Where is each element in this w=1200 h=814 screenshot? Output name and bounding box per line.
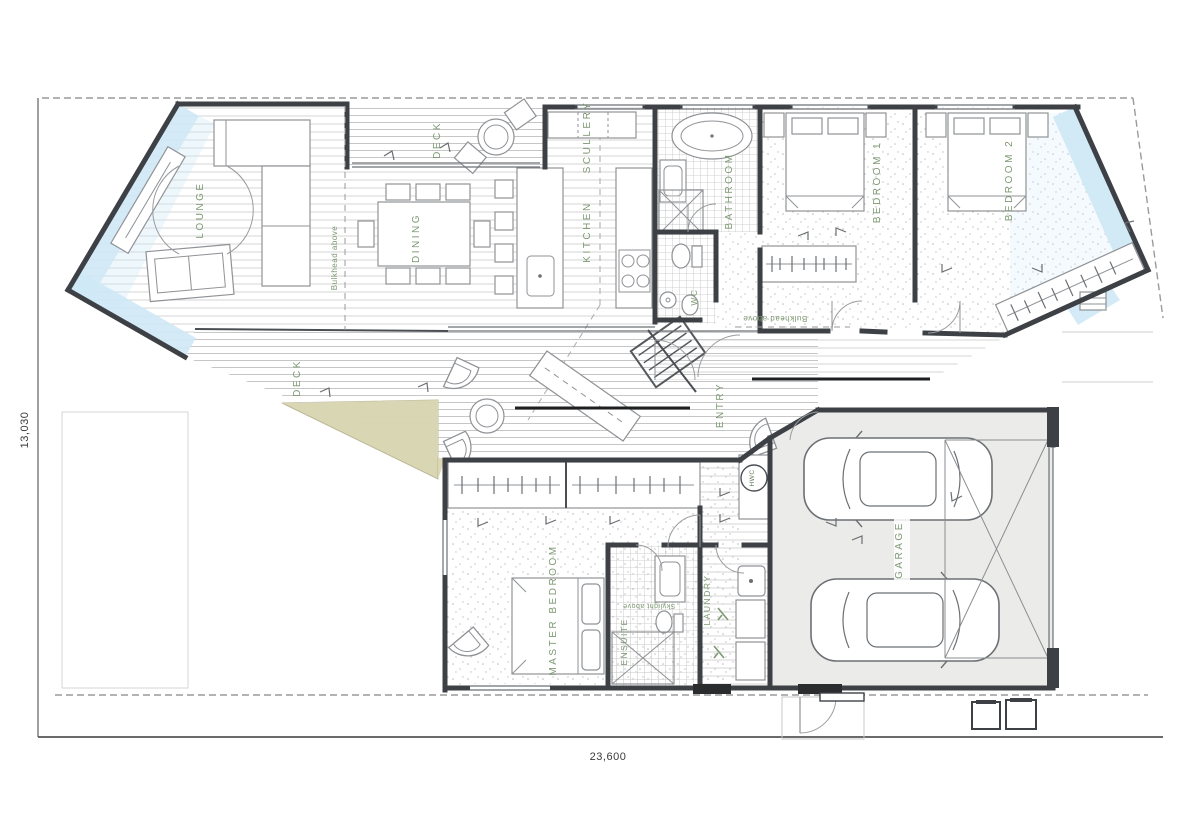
dining-chair: [416, 184, 440, 200]
dining-chair: [446, 184, 470, 200]
bar-stool: [495, 212, 513, 230]
toilet-cistern: [692, 246, 702, 267]
garage-pilaster: [1047, 407, 1059, 447]
bar-stool: [495, 276, 513, 294]
bedroom1-wardrobe: [762, 246, 856, 282]
dining-chair: [386, 268, 410, 284]
bar-stool: [495, 244, 513, 262]
room-label-bedroom2: BEDROOM 2: [1004, 139, 1015, 222]
washing-machine: [736, 600, 765, 638]
room-label-laundry: LAUNDRY: [702, 575, 712, 626]
room-label-hwc: HWC: [749, 469, 756, 486]
toilet: [672, 244, 690, 268]
room-label-deck-middle: DECK: [292, 359, 303, 397]
ensuite-toilet: [656, 611, 672, 633]
sofa-section-top: [214, 120, 310, 166]
room-label-lounge: LOUNGE: [195, 181, 206, 238]
bedside-table: [764, 113, 784, 137]
kitchen-island: [517, 168, 563, 308]
room-label-entry: ENTRY: [715, 382, 726, 428]
pillow: [582, 630, 600, 670]
dining-table: [378, 202, 470, 266]
bedside-table: [866, 113, 886, 137]
room-label-wc: WC: [689, 288, 699, 305]
room-label-scullery: SCULLERY: [582, 101, 593, 174]
room-label-master-bedroom: MASTER BEDROOM: [548, 544, 559, 675]
room-label-bathroom: BATHROOM: [724, 152, 735, 229]
dining-chair: [416, 268, 440, 284]
wc-basin: [660, 292, 676, 308]
master-wardrobe: [448, 462, 700, 508]
deck-table: [478, 119, 514, 155]
boundary-right-dashed: [1133, 98, 1163, 318]
deck-table: [470, 399, 504, 433]
car-bottom: [811, 572, 999, 668]
room-label-deck-top: DECK: [432, 121, 443, 159]
hall-floor: [655, 331, 1008, 380]
room-label-ensuite: ENSUITE: [619, 618, 629, 665]
pillow: [582, 584, 600, 624]
dining-chair: [446, 268, 470, 284]
room-label-kitchen: KITCHEN: [582, 201, 593, 262]
room-label-garage: GARAGE: [894, 521, 905, 579]
bar-stool: [495, 180, 513, 198]
dryer: [736, 642, 765, 680]
room-label-dining: DINING: [411, 213, 422, 263]
garage-rear-door: [782, 697, 864, 739]
bedside-table: [926, 113, 946, 137]
bin: [1006, 700, 1036, 729]
floor-plan-page: LOUNGE DECK DINING SCULLERY KITCHEN BATH…: [0, 0, 1200, 814]
dining-chair: [474, 221, 490, 247]
dimension-site-depth: 13,030: [19, 412, 31, 449]
bedside-table: [1028, 113, 1048, 137]
dimension-site-width: 23,600: [590, 751, 627, 763]
dining-chair: [386, 184, 410, 200]
sofa-two-seater: [146, 244, 234, 301]
annotation-bulkhead-living: Bulkhead above: [330, 226, 339, 290]
annotation-bulkhead-hall: Bulkhead above: [743, 314, 807, 323]
kitchen-bench: [616, 168, 652, 308]
bin: [972, 702, 1000, 729]
lawn-patio: [62, 412, 188, 688]
garage-pilaster: [1047, 648, 1059, 688]
dining-chair: [358, 221, 374, 247]
annotation-skylight-ensuite: Skylight above: [623, 602, 676, 609]
room-label-bedroom1: BEDROOM 1: [872, 141, 883, 224]
floor-plan-drawing: LOUNGE DECK DINING SCULLERY KITCHEN BATH…: [0, 0, 1200, 814]
